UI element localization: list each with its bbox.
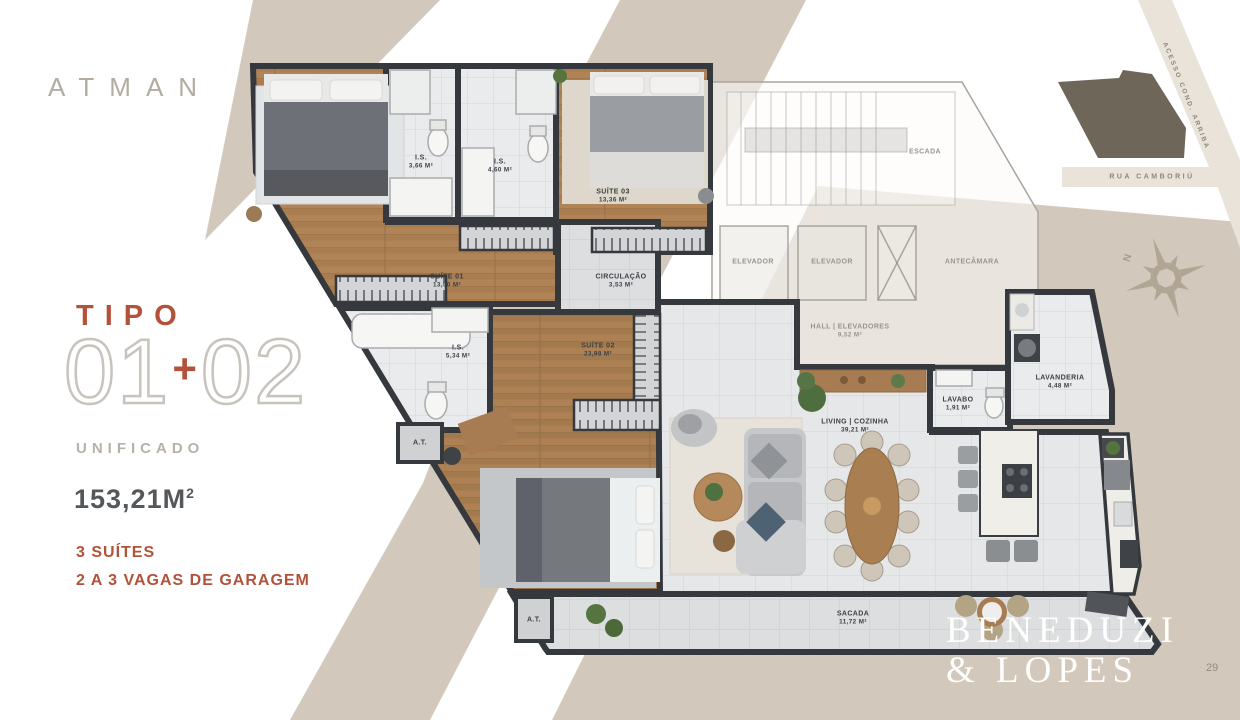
unit-numbers: 01+02 [64, 326, 307, 418]
page-number: 29 [1206, 662, 1218, 674]
unificado-subtitle: UNIFICADO [76, 440, 204, 457]
beneduzi-lopes-logo: BENEDUZI & LOPES [946, 612, 1179, 689]
room-label-area: 4,60 M² [488, 166, 512, 174]
building-lot-shape [1058, 70, 1186, 158]
room-label-is-2: I.S.4,60 M² [488, 157, 512, 174]
room-label-text: A.T. [527, 616, 541, 623]
room-label-text: CIRCULAÇÃO [595, 273, 646, 280]
room-label-is-1: I.S.3,66 M² [409, 153, 433, 170]
suite-01-furniture [246, 74, 404, 222]
room-label-at-1: A.T. [413, 438, 427, 447]
total-area: 153,21M2 [74, 484, 195, 515]
room-label-lavanderia: LAVANDERIA4,48 M² [1036, 373, 1085, 390]
total-area-value: 153,21M [74, 484, 186, 514]
room-label-elevador-2: ELEVADOR [811, 257, 853, 266]
room-label-text: SACADA [837, 610, 869, 617]
room-label-area: 5,34 M² [446, 352, 470, 360]
room-label-suite-01: SUÍTE 0113,50 M² [430, 272, 464, 289]
room-label-text: LAVANDERIA [1036, 374, 1085, 381]
feature-garage: 2 A 3 VAGAS DE GARAGEM [76, 572, 310, 590]
room-label-text: ELEVADOR [732, 258, 774, 265]
room-label-text: SUÍTE 02 [581, 342, 615, 349]
room-label-is-3: I.S.5,34 M² [446, 343, 470, 360]
room-label-area: 23,98 M² [581, 350, 615, 358]
room-label-text: A.T. [413, 439, 427, 446]
room-label-area: 39,21 M² [821, 426, 888, 434]
room-label-area: 11,72 M² [837, 618, 869, 626]
room-label-text: I.S. [415, 154, 427, 161]
room-label-area: 1,91 M² [943, 404, 974, 412]
room-label-sacada: SACADA11,72 M² [837, 609, 869, 626]
road-label-rua-camboriu: RUA CAMBORIÚ [1109, 174, 1194, 181]
room-label-text: ELEVADOR [811, 258, 853, 265]
room-label-text: ANTECÂMARA [945, 258, 999, 265]
room-label-hall: HALL | ELEVADORES9,52 M² [811, 322, 890, 339]
room-label-suite-02: SUÍTE 0223,98 M² [581, 341, 615, 358]
room-label-escada: ESCADA [909, 147, 941, 156]
room-label-area: 3,66 M² [409, 162, 433, 170]
room-label-circulacao: CIRCULAÇÃO3,53 M² [595, 272, 646, 289]
room-label-text: I.S. [452, 344, 464, 351]
atman-logo: ATMAN [48, 72, 212, 103]
room-label-area: 9,52 M² [811, 331, 890, 339]
suite-03-furniture [562, 72, 714, 204]
plus-sign: + [172, 345, 199, 392]
feature-suites: 3 SUÍTES [76, 544, 155, 562]
antechamber-door [878, 226, 916, 300]
room-label-antecamara: ANTECÂMARA [945, 257, 999, 266]
unit-number-left: 01 [64, 321, 170, 423]
total-area-exponent: 2 [186, 485, 195, 501]
room-label-text: HALL | ELEVADORES [811, 323, 890, 330]
room-label-text: SUÍTE 01 [430, 273, 464, 280]
room-label-text: LAVABO [943, 396, 974, 403]
room-label-living: LIVING | COZINHA39,21 M² [821, 417, 888, 434]
footer-brand-line2: & LOPES [946, 652, 1179, 690]
room-label-area: 3,53 M² [595, 281, 646, 289]
room-label-suite-03: SUÍTE 0313,36 M² [596, 187, 630, 204]
room-label-text: ESCADA [909, 148, 941, 155]
room-label-area: 13,50 M² [430, 281, 464, 289]
room-label-lavabo: LAVABO1,91 M² [943, 395, 974, 412]
room-label-text: I.S. [494, 158, 506, 165]
room-label-text: SUÍTE 03 [596, 188, 630, 195]
slide: ATMAN TIPO 01+02 UNIFICADO 153,21M2 3 SU… [0, 0, 1240, 720]
room-label-at-2: A.T. [527, 615, 541, 624]
room-label-area: 4,48 M² [1036, 382, 1085, 390]
footer-brand-line1: BENEDUZI [946, 612, 1179, 650]
room-label-text: LIVING | COZINHA [821, 418, 888, 425]
room-label-elevador-1: ELEVADOR [732, 257, 774, 266]
room-label-area: 13,36 M² [596, 196, 630, 204]
unit-number-right: 02 [201, 321, 307, 423]
